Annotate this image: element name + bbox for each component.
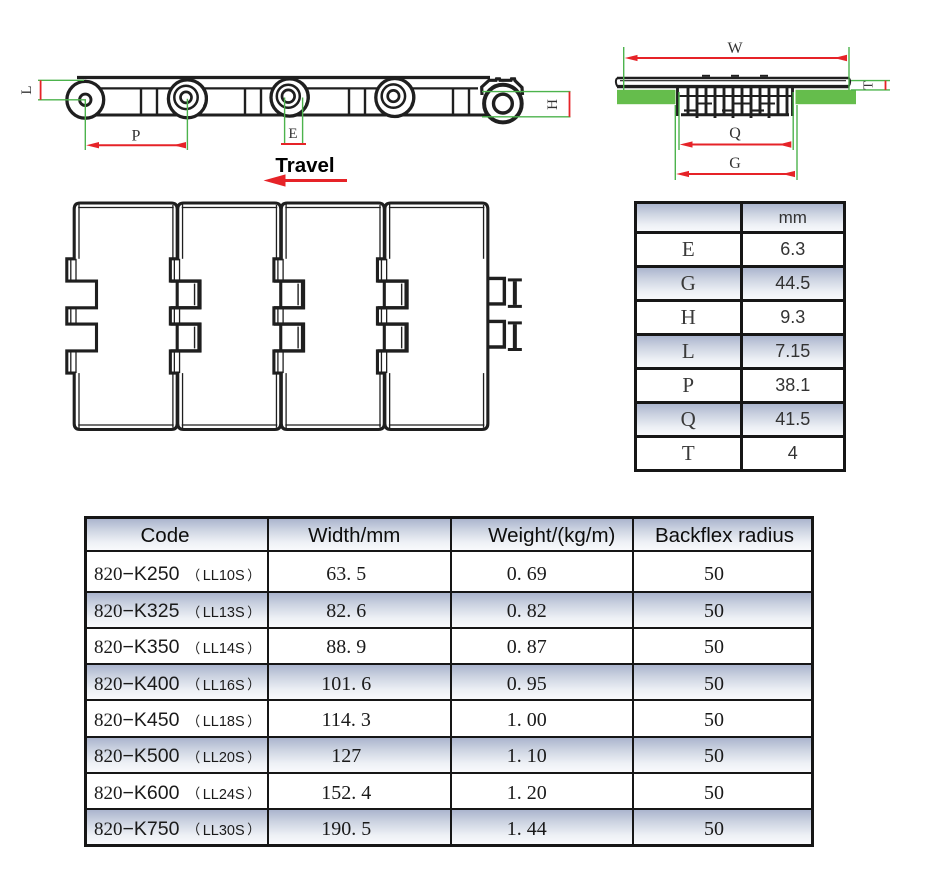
svg-text:T: T — [862, 81, 877, 90]
svg-text:G: G — [729, 155, 741, 172]
svg-text:W: W — [727, 40, 743, 57]
svg-text:E: E — [288, 126, 297, 142]
svg-text:L: L — [19, 85, 35, 94]
svg-text:Travel: Travel — [275, 154, 334, 177]
svg-text:P: P — [132, 128, 141, 145]
svg-text:Q: Q — [729, 125, 741, 142]
svg-text:H: H — [545, 99, 561, 110]
